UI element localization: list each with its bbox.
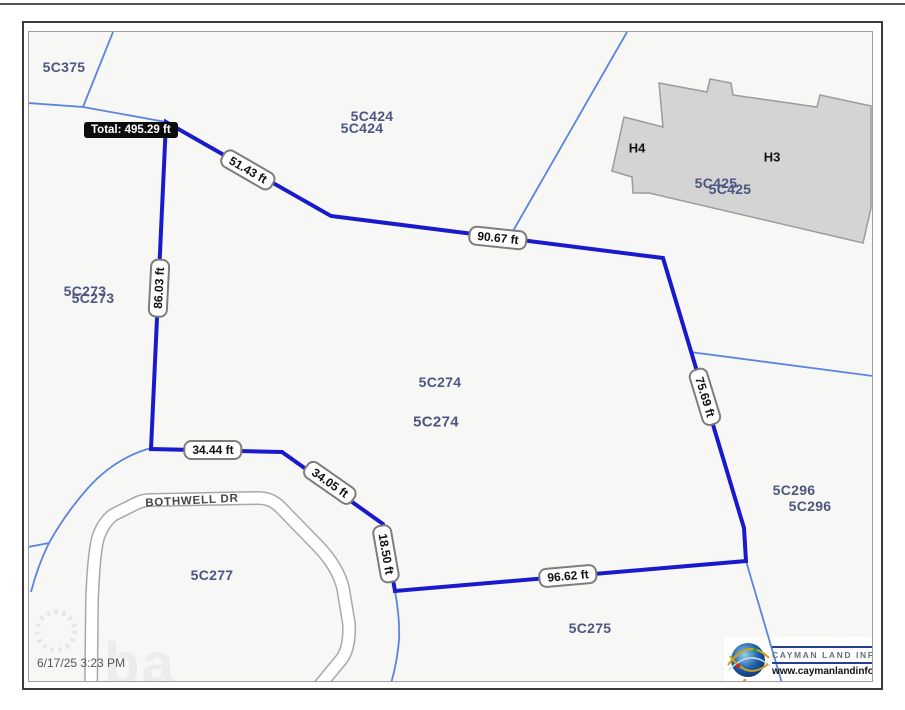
- total-measurement-tooltip: Total: 495.29 ft: [84, 122, 178, 138]
- parcel-label: 5C296: [773, 482, 816, 498]
- measurement-label: 86.03 ft: [147, 258, 170, 318]
- parcel-label: 5C274: [419, 374, 462, 390]
- globe-swirl-icon: [724, 635, 774, 682]
- parcel-label: 5C275: [569, 620, 612, 636]
- timestamp: 6/17/25 3:23 PM: [37, 656, 125, 670]
- parcel-label: 5C277: [191, 567, 234, 583]
- parcel-label: 5C375: [43, 59, 86, 75]
- cayman-land-info-logo: CAYMAN LAND INFO www.caymanlandinfo.ky: [724, 637, 873, 682]
- building-label-h3: H3: [764, 150, 781, 165]
- logo-divider: [772, 662, 872, 664]
- parcel-label: 5C425: [709, 181, 752, 197]
- building-footprint: [612, 79, 871, 243]
- logo-url: www.caymanlandinfo.ky: [772, 666, 872, 677]
- parcel-label: 5C273: [72, 290, 115, 306]
- logo-name: CAYMAN LAND INFO: [772, 650, 872, 660]
- parcel-label: 5C424: [341, 120, 384, 136]
- building-label-h4: H4: [629, 141, 646, 156]
- window-top-edge: [0, 3, 905, 5]
- parcel-label: 5C274: [413, 414, 459, 431]
- parcel-label: 5C296: [789, 498, 832, 514]
- map-canvas[interactable]: ba: [28, 31, 873, 682]
- road-bothwell-dr: [91, 498, 349, 682]
- map-frame: ba: [28, 31, 873, 682]
- measurement-label: 34.44 ft: [183, 440, 242, 460]
- logo-divider: [772, 646, 872, 648]
